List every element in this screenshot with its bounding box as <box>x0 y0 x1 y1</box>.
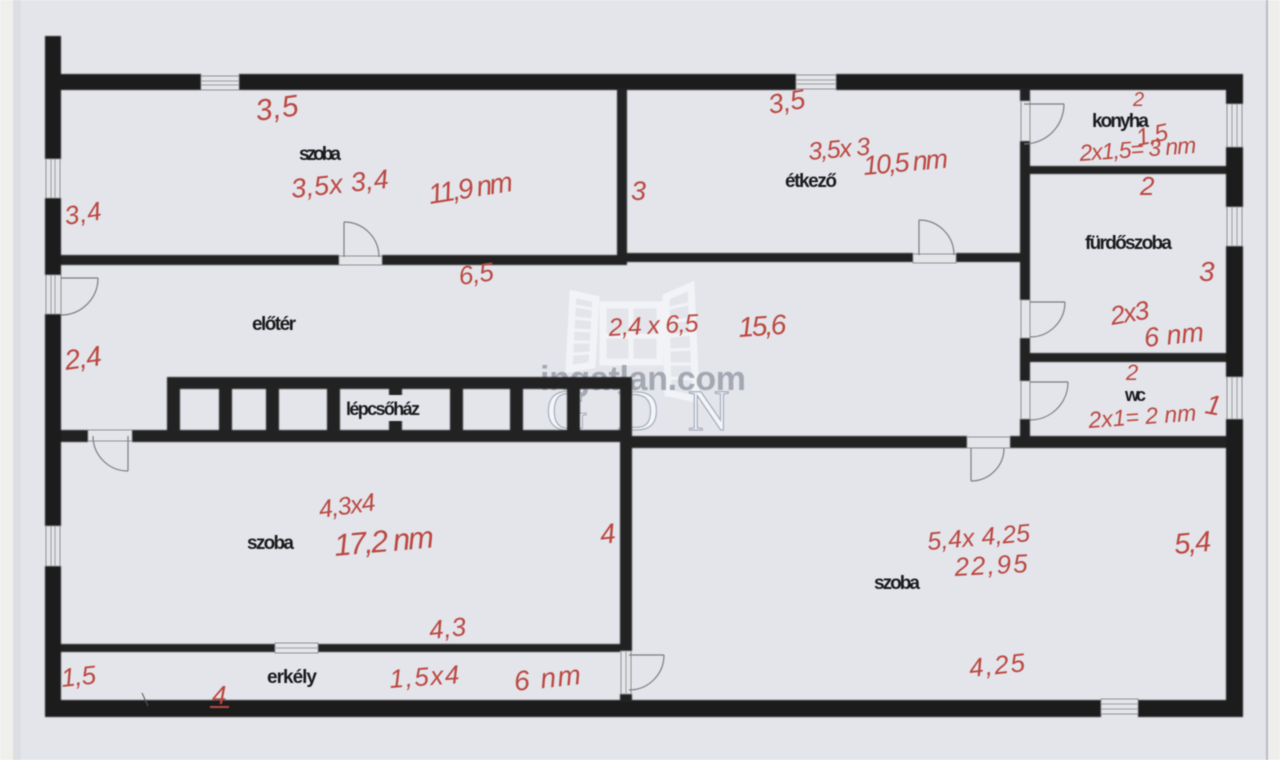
svg-text:6,5: 6,5 <box>457 256 496 291</box>
svg-text:5,4: 5,4 <box>1173 526 1213 561</box>
svg-text:szoba: szoba <box>874 573 920 594</box>
svg-text:22,95: 22,95 <box>953 548 1029 582</box>
svg-text:szoba: szoba <box>299 144 341 165</box>
svg-text:6 nm: 6 nm <box>1142 317 1205 353</box>
svg-text:3,4: 3,4 <box>62 196 103 231</box>
svg-text:fürdőszoba: fürdőszoba <box>1085 233 1172 254</box>
svg-text:2: 2 <box>1132 89 1144 111</box>
svg-text:2,4: 2,4 <box>62 340 104 376</box>
svg-text:1,5: 1,5 <box>59 659 97 693</box>
svg-text:3: 3 <box>631 176 646 206</box>
svg-text:wc: wc <box>1124 385 1146 405</box>
svg-text:3,5x 3: 3,5x 3 <box>807 133 871 166</box>
svg-text:4,25: 4,25 <box>967 647 1026 683</box>
svg-text:15,6: 15,6 <box>737 309 787 343</box>
svg-text:4: 4 <box>212 680 226 710</box>
svg-text:3,5: 3,5 <box>253 89 300 128</box>
svg-text:1,5x4: 1,5x4 <box>388 659 460 694</box>
svg-text:előtér: előtér <box>252 314 297 335</box>
svg-text:erkély: erkély <box>267 667 317 688</box>
svg-text:2: 2 <box>1139 171 1155 201</box>
svg-text:2: 2 <box>1125 360 1138 385</box>
svg-text:2,4 x 6,5: 2,4 x 6,5 <box>607 309 699 342</box>
svg-text:4,3: 4,3 <box>427 611 467 645</box>
svg-text:4: 4 <box>598 518 617 550</box>
svg-text:étkező: étkező <box>785 171 837 192</box>
svg-text:3: 3 <box>1199 256 1215 287</box>
svg-text:szoba: szoba <box>247 533 294 554</box>
svg-text:lépcsőház: lépcsőház <box>346 399 420 419</box>
